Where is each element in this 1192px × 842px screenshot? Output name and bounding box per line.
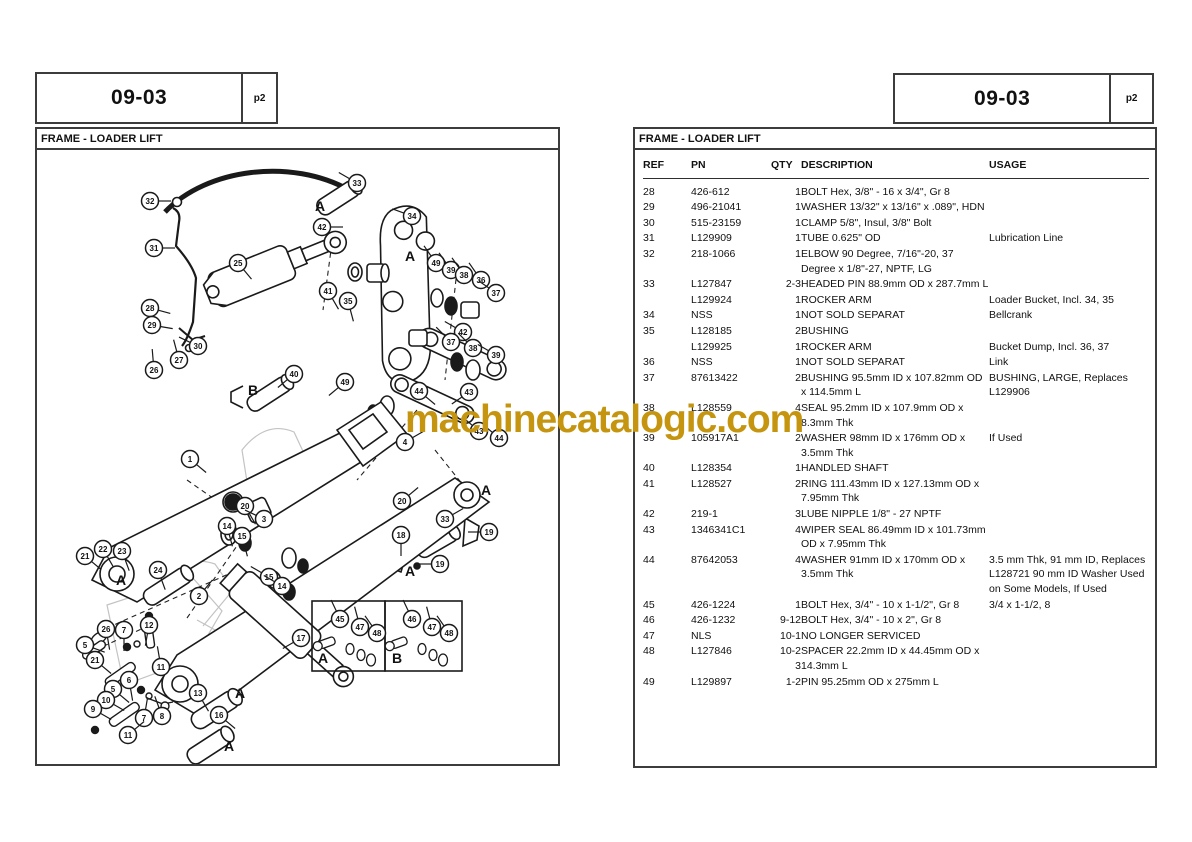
svg-text:30: 30	[194, 342, 203, 351]
svg-text:48: 48	[373, 629, 382, 638]
cell-ref: 32	[643, 246, 691, 276]
cell-desc: BOLT Hex, 3/8" - 16 x 3/4", Gr 8	[801, 178, 989, 199]
diagram-shapes	[81, 171, 509, 764]
cell-ref: 31	[643, 230, 691, 246]
catalog-spread: { "watermark": {"text": "machinecatalogi…	[0, 0, 1192, 842]
svg-text:19: 19	[485, 528, 494, 537]
cell-desc: WIPER SEAL 86.49mm ID x 101.73mm OD x 7.…	[801, 522, 989, 552]
cell-qty: 1	[771, 339, 801, 355]
cell-qty: 1	[771, 460, 801, 476]
svg-text:8: 8	[160, 712, 165, 721]
cell-usage: If Used	[989, 430, 1149, 460]
cell-qty: 9-12	[771, 612, 801, 628]
cell-ref: 48	[643, 643, 691, 673]
cell-ref: 47	[643, 628, 691, 644]
svg-text:19: 19	[436, 560, 445, 569]
cell-ref	[643, 292, 691, 308]
callout-11: 11	[153, 646, 170, 675]
svg-text:42: 42	[318, 223, 327, 232]
callout-49: 49	[329, 374, 354, 396]
cell-desc: PIN 95.25mm OD x 275mm L	[801, 674, 989, 690]
diagram-letter-A: A	[235, 685, 245, 701]
cell-pn: 426-1224	[691, 597, 771, 613]
table-row: 40L1283541HANDLED SHAFT	[643, 460, 1149, 476]
svg-text:11: 11	[157, 663, 166, 672]
right-page: FRAME - LOADER LIFT REF PN QTY DESCRIPTI…	[633, 127, 1157, 768]
cell-qty: 2	[771, 370, 801, 400]
col-header-usage: USAGE	[989, 152, 1149, 178]
cell-ref	[643, 339, 691, 355]
cell-desc: WASHER 98mm ID x 176mm OD x 3.5mm Thk	[801, 430, 989, 460]
svg-text:23: 23	[118, 547, 127, 556]
left-page-header: 09-03 p2	[35, 72, 278, 124]
svg-text:47: 47	[428, 623, 437, 632]
cell-desc: NO LONGER SERVICED	[801, 628, 989, 644]
cell-usage: Link	[989, 354, 1149, 370]
diagram-letter-A: A	[405, 563, 415, 579]
svg-text:44: 44	[415, 387, 424, 396]
callout-46: 46	[403, 600, 420, 628]
cell-usage: Loader Bucket, Incl. 34, 35	[989, 292, 1149, 308]
svg-text:17: 17	[297, 634, 306, 643]
cell-qty: 3	[771, 506, 801, 522]
svg-text:6: 6	[127, 676, 132, 685]
cell-qty: 1	[771, 354, 801, 370]
table-row: 45426-12241BOLT Hex, 3/4" - 10 x 1-1/2",…	[643, 597, 1149, 613]
svg-text:33: 33	[441, 515, 450, 524]
svg-text:5: 5	[83, 641, 88, 650]
svg-text:36: 36	[477, 276, 486, 285]
svg-text:15: 15	[238, 532, 247, 541]
cell-usage	[989, 276, 1149, 292]
callout-8: 8	[154, 696, 171, 724]
cell-desc: CLAMP 5/8", Insul, 3/8" Bolt	[801, 215, 989, 231]
cell-usage: Lubrication Line	[989, 230, 1149, 246]
cell-usage	[989, 628, 1149, 644]
cell-desc: SEAL 95.2mm ID x 107.9mm OD x 8.3mm Thk	[801, 400, 989, 430]
cell-qty: 1	[771, 597, 801, 613]
cell-pn: 496-21041	[691, 199, 771, 215]
cell-usage	[989, 643, 1149, 673]
svg-text:2: 2	[197, 592, 202, 601]
cell-usage: Bucket Dump, Incl. 36, 37	[989, 339, 1149, 355]
cell-usage	[989, 522, 1149, 552]
cell-qty: 1	[771, 307, 801, 323]
cell-desc: ROCKER ARM	[801, 339, 989, 355]
cell-ref: 37	[643, 370, 691, 400]
svg-text:49: 49	[341, 378, 350, 387]
table-row: 32218-10661ELBOW 90 Degree, 7/16"-20, 37…	[643, 246, 1149, 276]
cell-pn: 1346341C1	[691, 522, 771, 552]
svg-text:16: 16	[215, 711, 224, 720]
cell-qty: 1	[771, 178, 801, 199]
diagram-letter-A: A	[116, 572, 126, 588]
callout-11: 11	[120, 722, 145, 744]
right-page-title: FRAME - LOADER LIFT	[635, 129, 1155, 150]
cell-desc: ROCKER ARM	[801, 292, 989, 308]
cell-ref: 33	[643, 276, 691, 292]
cell-qty: 1-2	[771, 674, 801, 690]
table-row: 49L1298971-2PIN 95.25mm OD x 275mm L	[643, 674, 1149, 690]
table-row: 30515-231591CLAMP 5/8", Insul, 3/8" Bolt	[643, 215, 1149, 231]
cell-qty: 4	[771, 522, 801, 552]
right-page-header: 09-03 p2	[893, 73, 1154, 124]
watermark: machinecatalogic.com	[405, 398, 803, 442]
cell-usage	[989, 476, 1149, 506]
table-row: 31L1299091TUBE 0.625" ODLubrication Line	[643, 230, 1149, 246]
cell-ref: 34	[643, 307, 691, 323]
callout-37: 37	[479, 281, 505, 302]
cell-desc: SPACER 22.2mm ID x 44.45mm OD x 14.3mm L	[801, 643, 989, 673]
callout-21: 21	[87, 652, 112, 674]
diagram-letter-B: B	[248, 382, 258, 398]
cell-pn: L127847	[691, 276, 771, 292]
table-row: 41L1285272RING 111.43mm ID x 127.13mm OD…	[643, 476, 1149, 506]
svg-text:22: 22	[99, 545, 108, 554]
cell-desc: BUSHING	[801, 323, 989, 339]
cell-usage: 3/4 x 1-1/2, 8	[989, 597, 1149, 613]
cell-usage	[989, 215, 1149, 231]
col-header-description: DESCRIPTION	[801, 152, 989, 178]
cell-ref: 40	[643, 460, 691, 476]
table-row: 37876134222BUSHING 95.5mm ID x 107.82mm …	[643, 370, 1149, 400]
svg-text:24: 24	[154, 566, 163, 575]
svg-text:49: 49	[432, 259, 441, 268]
svg-text:21: 21	[91, 656, 100, 665]
cell-usage	[989, 674, 1149, 690]
cell-usage	[989, 199, 1149, 215]
cell-desc: NOT SOLD SEPARAT	[801, 307, 989, 323]
cell-ref: 30	[643, 215, 691, 231]
cell-usage	[989, 612, 1149, 628]
svg-text:11: 11	[124, 731, 133, 740]
cell-desc: NOT SOLD SEPARAT	[801, 354, 989, 370]
cell-pn: L128527	[691, 476, 771, 506]
svg-text:32: 32	[146, 197, 155, 206]
cell-ref: 41	[643, 476, 691, 506]
table-row: 34NSS1NOT SOLD SEPARATBellcrank	[643, 307, 1149, 323]
cell-usage	[989, 400, 1149, 430]
cell-desc: WASHER 13/32" x 13/16" x .089", HDN	[801, 199, 989, 215]
svg-text:1: 1	[188, 455, 193, 464]
cell-desc: LUBE NIPPLE 1/8" - 27 NPTF	[801, 506, 989, 522]
right-section-number: 09-03	[895, 75, 1109, 122]
svg-text:29: 29	[148, 321, 157, 330]
svg-text:34: 34	[408, 212, 417, 221]
cell-ref: 44	[643, 552, 691, 597]
svg-text:7: 7	[122, 626, 127, 635]
svg-text:39: 39	[447, 266, 456, 275]
svg-text:47: 47	[356, 623, 365, 632]
svg-text:18: 18	[397, 531, 406, 540]
svg-text:38: 38	[460, 271, 469, 280]
cell-qty: 4	[771, 552, 801, 597]
callout-2: 2	[191, 580, 213, 605]
svg-text:9: 9	[91, 705, 96, 714]
cell-desc: ELBOW 90 Degree, 7/16"-20, 37 Degree x 1…	[801, 246, 989, 276]
cell-ref: 45	[643, 597, 691, 613]
cell-pn: 87642053	[691, 552, 771, 597]
cell-desc: TUBE 0.625" OD	[801, 230, 989, 246]
diagram-letter-A: A	[318, 650, 328, 666]
cell-qty: 2	[771, 476, 801, 506]
table-row: 431346341C14WIPER SEAL 86.49mm ID x 101.…	[643, 522, 1149, 552]
cell-pn: L129925	[691, 339, 771, 355]
svg-text:7: 7	[142, 714, 147, 723]
svg-text:26: 26	[150, 366, 159, 375]
svg-text:37: 37	[492, 289, 501, 298]
table-row: 48L12784610-2 3SPACER 22.2mm ID x 44.45m…	[643, 643, 1149, 673]
left-page-number: p2	[241, 74, 276, 122]
svg-text:25: 25	[234, 259, 243, 268]
cell-ref: 28	[643, 178, 691, 199]
cell-pn: L127846	[691, 643, 771, 673]
svg-text:10: 10	[102, 696, 111, 705]
cell-usage	[989, 506, 1149, 522]
left-section-number: 09-03	[37, 74, 241, 122]
svg-text:20: 20	[398, 497, 407, 506]
cell-desc: WASHER 91mm ID x 170mm OD x 3.5mm Thk	[801, 552, 989, 597]
table-row: 46426-12329-12BOLT Hex, 3/4" - 10 x 2", …	[643, 612, 1149, 628]
cell-pn: 219-1	[691, 506, 771, 522]
cell-qty: 1	[771, 246, 801, 276]
svg-text:38: 38	[469, 344, 478, 353]
right-page-number: p2	[1109, 75, 1152, 122]
cell-pn: L128185	[691, 323, 771, 339]
callout-31: 31	[146, 240, 176, 257]
diagram-letter-A: A	[224, 738, 234, 754]
callout-47: 47	[352, 607, 369, 636]
svg-text:33: 33	[353, 179, 362, 188]
svg-text:3: 3	[262, 515, 267, 524]
table-row: 42219-13LUBE NIPPLE 1/8" - 27 NPTF	[643, 506, 1149, 522]
cell-qty: 1	[771, 215, 801, 231]
svg-text:28: 28	[146, 304, 155, 313]
cell-pn: L129897	[691, 674, 771, 690]
svg-text:14: 14	[223, 522, 232, 531]
cell-pn: 515-23159	[691, 215, 771, 231]
cell-pn: 87613422	[691, 370, 771, 400]
cell-qty: 1	[771, 230, 801, 246]
left-page: FRAME - LOADER LIFT	[35, 127, 560, 766]
cell-pn: L129909	[691, 230, 771, 246]
cell-desc: BOLT Hex, 3/4" - 10 x 2", Gr 8	[801, 612, 989, 628]
cell-qty: 2	[771, 323, 801, 339]
parts-table-header-row: REF PN QTY DESCRIPTION USAGE	[643, 152, 1149, 178]
cell-pn: L128354	[691, 460, 771, 476]
cell-usage	[989, 246, 1149, 276]
cell-pn: L129924	[691, 292, 771, 308]
cell-usage: Bellcrank	[989, 307, 1149, 323]
table-row: 29496-210411WASHER 13/32" x 13/16" x .08…	[643, 199, 1149, 215]
callout-15: 15	[234, 528, 251, 557]
cell-desc: RING 111.43mm ID x 127.13mm OD x 7.95mm …	[801, 476, 989, 506]
callout-27: 27	[171, 340, 188, 369]
svg-text:48: 48	[445, 629, 454, 638]
cell-qty: 10-2 3	[771, 643, 801, 673]
diagram-svg: 3332344231254939383637413528293027264049…	[37, 150, 558, 764]
svg-text:27: 27	[175, 356, 184, 365]
callout-1: 1	[182, 451, 207, 473]
cell-usage	[989, 460, 1149, 476]
callout-47: 47	[424, 607, 441, 636]
cell-ref: 46	[643, 612, 691, 628]
cell-desc: BOLT Hex, 3/4" - 10 x 1-1/2", Gr 8	[801, 597, 989, 613]
diagram-letter-B: B	[392, 650, 402, 666]
diagram-letter-A: A	[405, 248, 415, 264]
cell-desc: BUSHING 95.5mm ID x 107.82mm OD x 114.5m…	[801, 370, 989, 400]
cell-qty: 1	[771, 292, 801, 308]
svg-text:40: 40	[290, 370, 299, 379]
cell-pn: NLS	[691, 628, 771, 644]
callout-26: 26	[146, 349, 163, 378]
table-row: 28426-6121BOLT Hex, 3/8" - 16 x 3/4", Gr…	[643, 178, 1149, 199]
svg-text:35: 35	[344, 297, 353, 306]
cell-usage: 3.5 mm Thk, 91 mm ID, Replaces L128721 9…	[989, 552, 1149, 597]
callout-28: 28	[142, 300, 171, 317]
cell-qty: 1	[771, 199, 801, 215]
svg-text:41: 41	[324, 287, 333, 296]
callout-41: 41	[320, 283, 339, 310]
cell-ref: 42	[643, 506, 691, 522]
cell-ref: 49	[643, 674, 691, 690]
svg-text:26: 26	[102, 625, 111, 634]
svg-text:21: 21	[81, 552, 90, 561]
cell-ref: 29	[643, 199, 691, 215]
left-page-title: FRAME - LOADER LIFT	[37, 129, 558, 150]
col-header-pn: PN	[691, 152, 771, 178]
cell-pn: 218-1066	[691, 246, 771, 276]
cell-usage	[989, 178, 1149, 199]
col-header-qty: QTY	[771, 152, 801, 178]
svg-text:37: 37	[447, 338, 456, 347]
svg-text:46: 46	[408, 615, 417, 624]
svg-text:39: 39	[492, 351, 501, 360]
cell-pn: 426-1232	[691, 612, 771, 628]
svg-text:31: 31	[150, 244, 159, 253]
svg-text:12: 12	[145, 621, 154, 630]
cell-ref: 43	[643, 522, 691, 552]
svg-text:45: 45	[336, 615, 345, 624]
table-row: L1299251ROCKER ARMBucket Dump, Incl. 36,…	[643, 339, 1149, 355]
cell-pn: 426-612	[691, 178, 771, 199]
cell-qty: 10-1	[771, 628, 801, 644]
cell-ref: 36	[643, 354, 691, 370]
table-row: L1299241ROCKER ARMLoader Bucket, Incl. 3…	[643, 292, 1149, 308]
table-row: 33L1278472-3HEADED PIN 88.9mm OD x 287.7…	[643, 276, 1149, 292]
callout-6: 6	[121, 672, 138, 701]
callout-35: 35	[340, 293, 357, 322]
table-row: 47NLS10-1NO LONGER SERVICED	[643, 628, 1149, 644]
svg-text:14: 14	[278, 582, 287, 591]
table-row: 35L1281852BUSHING	[643, 323, 1149, 339]
col-header-ref: REF	[643, 152, 691, 178]
diagram-letter-A: A	[315, 198, 325, 214]
cell-usage	[989, 323, 1149, 339]
diagram-letter-A: A	[481, 482, 491, 498]
cell-qty: 2-3	[771, 276, 801, 292]
table-row: 44876420534WASHER 91mm ID x 170mm OD x 3…	[643, 552, 1149, 597]
cell-ref: 35	[643, 323, 691, 339]
cell-desc: HANDLED SHAFT	[801, 460, 989, 476]
cell-usage: BUSHING, LARGE, Replaces L129906	[989, 370, 1149, 400]
cell-pn: NSS	[691, 354, 771, 370]
callout-29: 29	[144, 317, 173, 334]
cell-pn: NSS	[691, 307, 771, 323]
table-row: 36NSS1NOT SOLD SEPARATLink	[643, 354, 1149, 370]
cell-desc: HEADED PIN 88.9mm OD x 287.7mm L	[801, 276, 989, 292]
svg-text:43: 43	[465, 388, 474, 397]
svg-text:13: 13	[194, 689, 203, 698]
